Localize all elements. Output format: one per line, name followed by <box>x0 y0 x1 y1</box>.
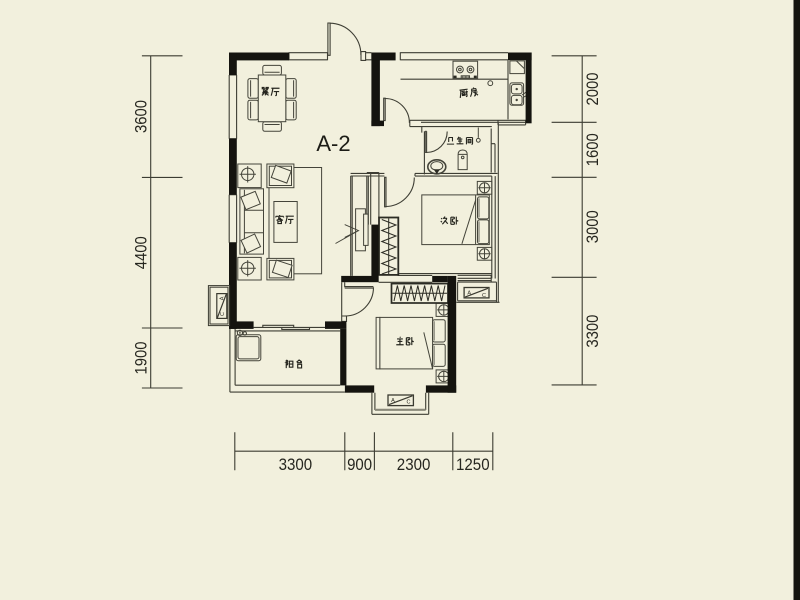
svg-text:3600: 3600 <box>133 100 151 133</box>
svg-text:C: C <box>482 293 486 299</box>
svg-text:3300: 3300 <box>279 456 313 474</box>
svg-text:A-2: A-2 <box>316 131 350 156</box>
svg-text:A: A <box>467 290 471 296</box>
svg-text:C: C <box>220 312 226 316</box>
svg-text:900: 900 <box>347 456 372 474</box>
svg-text:A: A <box>220 296 226 300</box>
svg-text:1900: 1900 <box>133 342 151 375</box>
svg-text:A: A <box>391 398 395 404</box>
svg-text:3300: 3300 <box>584 315 602 348</box>
svg-text:2000: 2000 <box>584 73 602 106</box>
svg-text:3000: 3000 <box>584 210 602 243</box>
svg-text:2300: 2300 <box>397 456 431 474</box>
svg-text:4400: 4400 <box>133 236 151 269</box>
svg-text:C: C <box>407 400 411 406</box>
svg-text:1250: 1250 <box>456 456 490 474</box>
svg-text:1600: 1600 <box>584 133 602 166</box>
